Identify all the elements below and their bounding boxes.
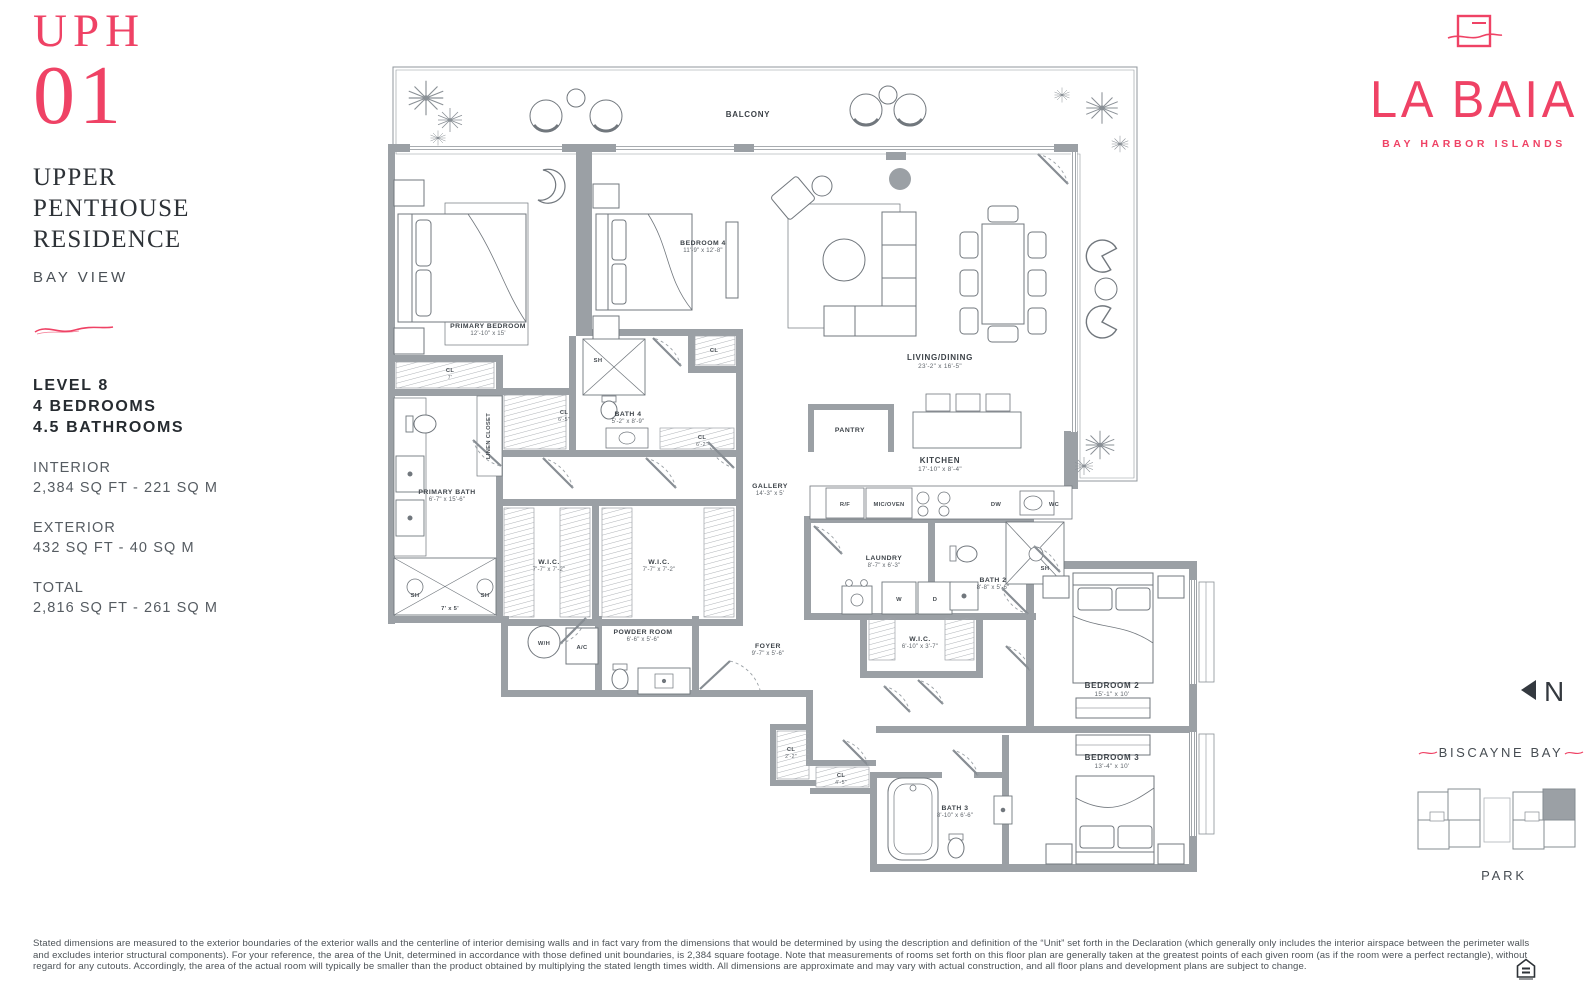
room-label: BALCONY [726,110,770,119]
disclaimer-text: Stated dimensions are measured to the ex… [33,938,1533,973]
room-label: LINEN CLOSET [486,413,492,459]
park-label: PARK [1444,868,1564,883]
total-value: 2,816 SQ FT - 261 SQ M [33,598,333,618]
level-fact: LEVEL 8 [33,375,333,396]
residence-title: UPPER PENTHOUSE RESIDENCE [33,162,333,255]
room-label: CL4'-5" [835,773,847,786]
water-label: BISCAYNE BAY [1439,745,1564,760]
room-label: W.I.C.7'-7" x 7'-2" [643,559,676,573]
interior-value: 2,384 SQ FT - 221 SQ M [33,478,333,498]
keyplan [1410,782,1586,867]
bedrooms-fact: 4 BEDROOMS [33,396,333,417]
room-label: SH [481,593,490,599]
room-label: CL6'-5" [558,410,570,423]
room-label: CL [710,348,718,354]
room-label: A/C [577,645,588,651]
brand-mark-icon [1360,10,1588,62]
room-label: W.I.C.6'-10" x 3'-7" [902,636,938,650]
exterior-value: 432 SQ FT - 40 SQ M [33,538,333,558]
room-label: LAUNDRY8'-7" x 6'-3" [866,555,902,569]
unit-facts: LEVEL 8 4 BEDROOMS 4.5 BATHROOMS INTERIO… [33,375,333,618]
room-label: BATH 45'-2" x 8'-9" [612,411,645,425]
water-label-row: BISCAYNE BAY [1418,745,1584,760]
room-label: 7' x 5' [441,606,459,612]
wave-icon [1418,749,1438,757]
floorplan-sheet: UPH 01 UPPER PENTHOUSE RESIDENCE BAY VIE… [0,0,1594,1000]
room-label: PRIMARY BATH6'-7" x 15'-6" [418,489,475,503]
brand-tagline: BAY HARBOR ISLANDS [1360,138,1588,150]
room-label: WC [1049,502,1060,508]
brand-logo: LA BAIA BAY HARBOR ISLANDS [1360,10,1588,150]
room-label: BEDROOM 215'-1" x 10' [1085,681,1140,698]
room-label: PANTRY [835,427,865,434]
keyplan-building-right [1513,789,1575,849]
doors [473,154,1068,775]
room-label: SH [1041,566,1050,572]
room-label: BEDROOM 313'-4" x 10' [1085,753,1140,770]
room-label: SH [594,358,603,364]
room-label: POWDER ROOM6'-6" x 5'-6" [613,629,672,643]
room-label: BATH 28'-8" x 5'-6" [977,577,1010,591]
north-arrow-icon: N [1518,672,1582,713]
interior-label: INTERIOR [33,458,333,478]
bathrooms-fact: 4.5 BATHROOMS [33,417,333,438]
room-label: W/H [538,641,550,647]
total-label: TOTAL [33,578,333,598]
unit-number: 01 [33,57,333,134]
room-label: D [933,597,938,603]
room-label: DW [991,502,1001,508]
unit-label: UPH [33,8,333,55]
floor-plan: BALCONYPRIMARY BEDROOM12'-10" x 15'BEDRO… [383,58,1223,895]
room-label: SH [411,593,420,599]
room-label: CL2'-2" [785,747,797,760]
room-label: LIVING/DINING23'-2" x 16'-5" [907,353,973,370]
keyplan-connector [1484,798,1510,842]
unit-info-panel: UPH 01 UPPER PENTHOUSE RESIDENCE BAY VIE… [33,8,333,618]
wave-divider-icon [33,322,333,343]
keyplan-building-left [1418,789,1480,849]
svg-text:N: N [1544,676,1564,707]
room-label: BATH 38'-10" x 6'-6" [937,805,973,819]
room-label: FOYER9'-7" x 5'-6" [752,643,785,657]
room-label: MIC/OVEN [873,502,904,508]
room-label: GALLERY14'-3" x 5' [752,483,788,497]
room-label: CL6'-2" [696,435,708,448]
svg-text:LA BAIA: LA BAIA [1370,71,1578,129]
room-label: R/F [840,502,850,508]
room-label: KITCHEN17'-10" x 8'-4" [918,456,962,473]
view-label: BAY VIEW [33,269,333,286]
exterior-label: EXTERIOR [33,518,333,538]
brand-name: LA BAIA [1360,69,1588,134]
equal-housing-icon [1516,958,1536,985]
room-label: W [896,597,902,603]
wave-icon [1564,749,1584,757]
